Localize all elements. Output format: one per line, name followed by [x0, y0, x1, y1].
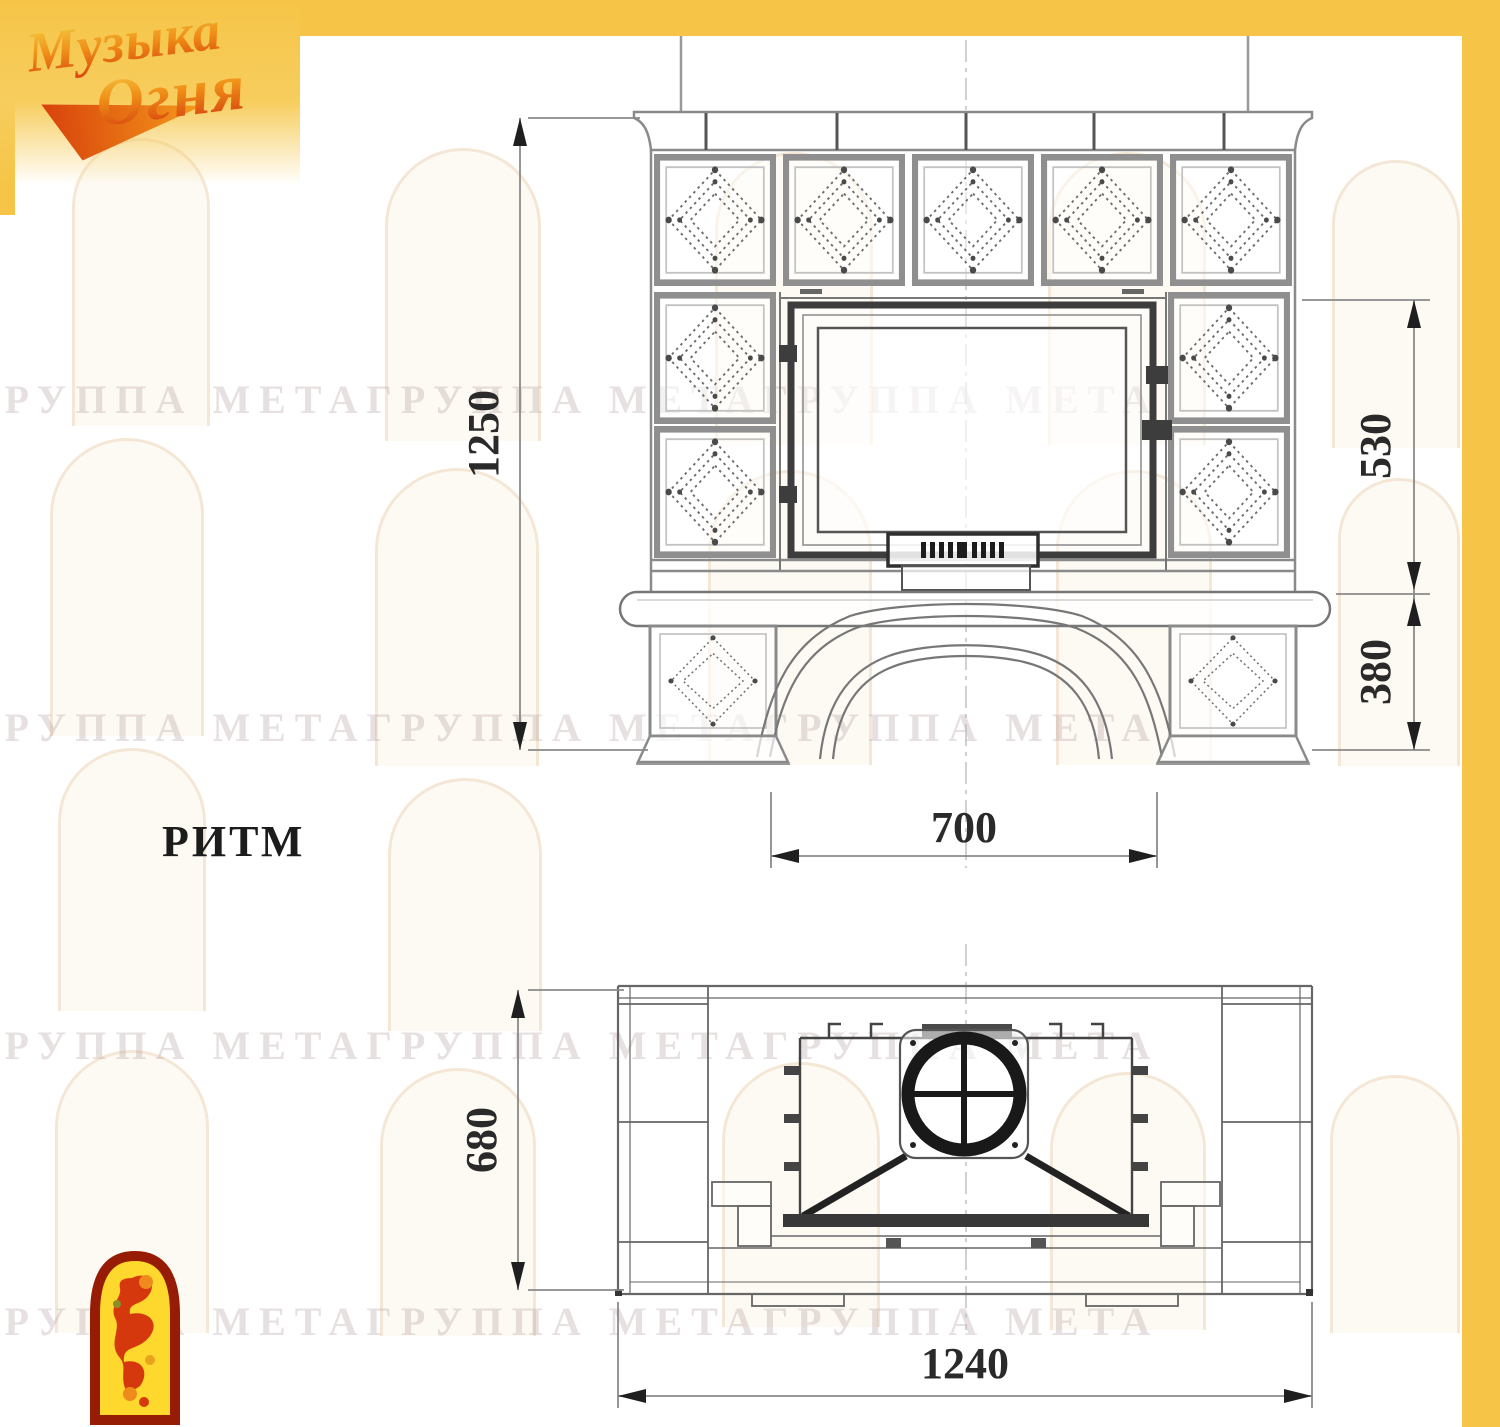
- dim-label-opening-width: 700: [931, 803, 997, 852]
- joint-accents: [800, 289, 1144, 294]
- front-view: [620, 36, 1330, 868]
- dim-label-width: 1240: [921, 1339, 1009, 1388]
- catalog-page: ГРУППА МЕТАГРУППА МЕТАГРУППА МЕТА ГРУППА…: [0, 0, 1500, 1427]
- mantel-shelf: [620, 592, 1330, 626]
- technical-drawing: 1250 530 380 700: [0, 0, 1500, 1427]
- dim-label-base-zone: 380: [1351, 639, 1400, 705]
- dim-label-firebox-zone: 530: [1351, 413, 1400, 479]
- flue-extension-lines: [681, 36, 1248, 112]
- plan-front-feet: [752, 1294, 1178, 1306]
- dim-label-total-height: 1250: [459, 390, 508, 478]
- plan-door-front-band: [783, 1214, 1149, 1227]
- left-pillar: [650, 626, 776, 736]
- door-glass: [818, 328, 1126, 532]
- dim-label-depth: 680: [457, 1107, 506, 1173]
- plan-firebox: [783, 1024, 1149, 1248]
- firebox-door: [779, 292, 1172, 570]
- cornice: [634, 112, 1312, 150]
- base-feet: [638, 736, 1308, 762]
- plan-view: [615, 944, 1313, 1330]
- right-pillar: [1170, 626, 1296, 736]
- vent-grill: [888, 534, 1038, 590]
